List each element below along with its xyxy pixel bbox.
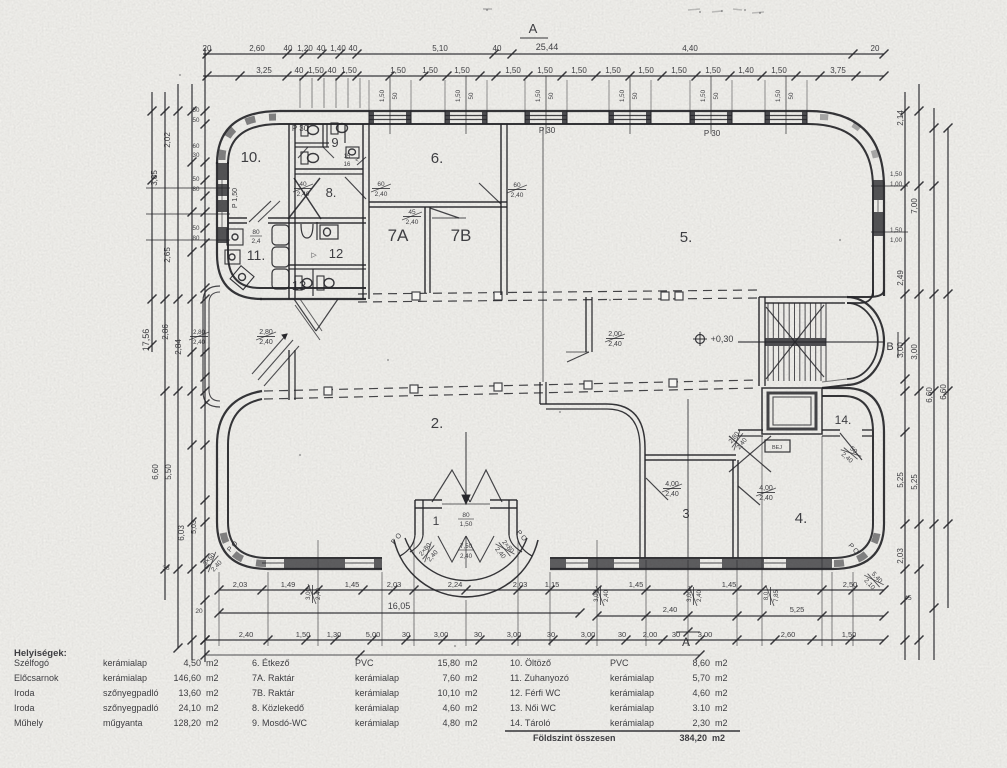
svg-text:3,00: 3,00 <box>896 342 905 358</box>
svg-text:30: 30 <box>402 630 410 639</box>
svg-text:9. Mosdó-WC: 9. Mosdó-WC <box>252 718 308 728</box>
svg-text:P 1,50: P 1,50 <box>232 188 239 208</box>
svg-text:80: 80 <box>193 235 200 242</box>
svg-text:2,50: 2,50 <box>843 580 858 589</box>
svg-text:2,03: 2,03 <box>513 580 528 589</box>
svg-text:3,75: 3,75 <box>830 66 846 75</box>
svg-text:1,20: 1,20 <box>297 44 313 53</box>
svg-text:3,00: 3,00 <box>434 630 449 639</box>
svg-text:7,50: 7,50 <box>460 543 473 550</box>
svg-text:2,80: 2,80 <box>193 330 205 336</box>
svg-text:2,40: 2,40 <box>259 339 273 346</box>
svg-text:m2: m2 <box>715 703 728 713</box>
svg-text:kerámialap: kerámialap <box>103 673 147 683</box>
svg-text:2,40: 2,40 <box>375 191 388 198</box>
svg-text:20: 20 <box>195 608 203 615</box>
svg-text:60: 60 <box>193 143 200 150</box>
svg-text:7,60: 7,60 <box>442 673 460 683</box>
svg-text:2,40: 2,40 <box>297 191 310 198</box>
svg-text:2,40: 2,40 <box>665 491 679 498</box>
svg-text:B: B <box>886 341 893 353</box>
svg-text:Iroda: Iroda <box>14 703 35 713</box>
svg-text:3: 3 <box>682 506 689 521</box>
svg-text:2.: 2. <box>431 415 444 432</box>
svg-text:m2: m2 <box>465 658 478 668</box>
svg-text:50: 50 <box>193 176 200 183</box>
svg-text:40: 40 <box>328 66 337 75</box>
svg-text:Műhely: Műhely <box>14 718 44 728</box>
svg-text:7B. Raktár: 7B. Raktár <box>252 688 295 698</box>
svg-text:8. Közlekedő: 8. Közlekedő <box>252 703 304 713</box>
svg-text:13: 13 <box>292 278 306 293</box>
svg-text:m2: m2 <box>465 673 478 683</box>
svg-text:2,03: 2,03 <box>233 580 248 589</box>
svg-text:2,00: 2,00 <box>608 331 622 338</box>
svg-text:128,20: 128,20 <box>173 718 201 728</box>
svg-text:2,40: 2,40 <box>316 588 322 600</box>
svg-text:7A. Raktár: 7A. Raktár <box>252 673 295 683</box>
svg-text:50: 50 <box>193 117 200 124</box>
svg-text:9: 9 <box>331 135 338 150</box>
svg-text:m2: m2 <box>206 703 219 713</box>
svg-text:5,10: 5,10 <box>432 44 448 53</box>
svg-text:4,60: 4,60 <box>442 703 460 713</box>
svg-text:m2: m2 <box>465 688 478 698</box>
svg-text:5,03: 5,03 <box>191 520 198 534</box>
svg-text:2,86: 2,86 <box>161 324 170 340</box>
svg-text:30: 30 <box>672 630 680 639</box>
svg-text:1,50: 1,50 <box>308 66 324 75</box>
svg-text:A: A <box>529 21 538 36</box>
svg-text:szőnyegpadló: szőnyegpadló <box>103 688 159 698</box>
svg-text:kerámialap: kerámialap <box>610 673 654 683</box>
svg-text:50: 50 <box>468 92 475 99</box>
svg-text:5,70: 5,70 <box>692 673 710 683</box>
svg-text:2,40: 2,40 <box>604 590 610 602</box>
svg-text:3,00: 3,00 <box>910 344 919 360</box>
svg-text:5,00: 5,00 <box>366 630 381 639</box>
svg-text:m2: m2 <box>206 718 219 728</box>
svg-text:1: 1 <box>433 514 440 528</box>
svg-text:<: < <box>355 158 359 164</box>
svg-text:5,25: 5,25 <box>910 474 919 490</box>
svg-text:80: 80 <box>252 229 260 236</box>
svg-text:1,50: 1,50 <box>890 171 903 178</box>
svg-text:5,50: 5,50 <box>164 464 173 480</box>
svg-text:6,03: 6,03 <box>177 525 186 541</box>
svg-text:2,49: 2,49 <box>896 270 905 286</box>
svg-text:2,84: 2,84 <box>174 339 183 355</box>
svg-text:m2: m2 <box>715 688 728 698</box>
svg-text:1,49: 1,49 <box>281 580 296 589</box>
svg-text:20: 20 <box>203 44 212 53</box>
svg-text:7,85: 7,85 <box>774 590 780 602</box>
svg-text:PVC: PVC <box>610 658 629 668</box>
svg-text:1,50: 1,50 <box>296 630 311 639</box>
svg-text:1,45: 1,45 <box>629 580 644 589</box>
svg-text:Iroda: Iroda <box>14 688 35 698</box>
svg-text:1,50: 1,50 <box>460 521 473 528</box>
svg-text:1,50: 1,50 <box>700 89 707 102</box>
svg-text:1,40: 1,40 <box>330 44 346 53</box>
svg-text:kerámialap: kerámialap <box>610 688 654 698</box>
svg-text:1,50: 1,50 <box>671 66 687 75</box>
svg-text:16: 16 <box>344 162 351 168</box>
svg-text:8,0: 8,0 <box>764 591 770 600</box>
svg-text:7A: 7A <box>388 226 409 245</box>
svg-text:1,50: 1,50 <box>454 66 470 75</box>
svg-text:25,44: 25,44 <box>536 42 559 52</box>
svg-text:1,45: 1,45 <box>722 580 737 589</box>
svg-text:6,60: 6,60 <box>939 384 948 400</box>
svg-text:2,40: 2,40 <box>759 495 773 502</box>
svg-text:40: 40 <box>349 44 358 53</box>
svg-text:3,25: 3,25 <box>256 66 272 75</box>
svg-text:4,50: 4,50 <box>183 658 201 668</box>
svg-text:12: 12 <box>329 246 343 261</box>
svg-text:2,30: 2,30 <box>692 718 710 728</box>
svg-text:P 30: P 30 <box>704 129 721 138</box>
svg-text:m2: m2 <box>712 733 725 743</box>
svg-text:50: 50 <box>713 92 720 99</box>
svg-text:1,50: 1,50 <box>890 227 903 234</box>
svg-text:1,50: 1,50 <box>619 89 626 102</box>
svg-text:10.: 10. <box>241 149 262 166</box>
svg-text:1,50: 1,50 <box>605 66 621 75</box>
svg-text:1,50: 1,50 <box>842 630 857 639</box>
svg-text:3,00: 3,00 <box>698 630 713 639</box>
svg-text:2,02: 2,02 <box>163 132 172 148</box>
svg-text:40: 40 <box>317 44 326 53</box>
svg-text:6. Étkező: 6. Étkező <box>252 658 290 668</box>
svg-text:80: 80 <box>462 512 470 519</box>
svg-text:3.10: 3.10 <box>692 703 710 713</box>
svg-text:1,00: 1,00 <box>890 181 903 188</box>
svg-text:30: 30 <box>193 152 200 159</box>
svg-text:3,85: 3,85 <box>150 170 159 186</box>
svg-text:2,00: 2,00 <box>643 630 658 639</box>
svg-text:▷: ▷ <box>311 252 317 259</box>
svg-text:m2: m2 <box>715 658 728 668</box>
svg-text:2,4: 2,4 <box>251 238 260 245</box>
svg-text:kerámialap: kerámialap <box>355 688 399 698</box>
svg-text:m2: m2 <box>206 673 219 683</box>
svg-text:3,00: 3,00 <box>687 590 693 602</box>
svg-text:1,50: 1,50 <box>705 66 721 75</box>
svg-text:3,00: 3,00 <box>594 590 600 602</box>
svg-text:4,00: 4,00 <box>665 481 679 488</box>
svg-text:40: 40 <box>493 44 502 53</box>
svg-text:30: 30 <box>547 630 555 639</box>
svg-text:A: A <box>682 635 690 649</box>
svg-text:m2: m2 <box>206 658 219 668</box>
svg-text:2,60: 2,60 <box>249 44 265 53</box>
svg-text:BEJ: BEJ <box>772 445 782 451</box>
svg-text:2,14: 2,14 <box>896 110 905 126</box>
svg-text:2,80: 2,80 <box>259 329 273 336</box>
svg-text:5,25: 5,25 <box>896 472 905 488</box>
svg-text:3,00: 3,00 <box>507 630 522 639</box>
svg-text:műgyanta: műgyanta <box>103 718 143 728</box>
svg-text:12. Férfi WC: 12. Férfi WC <box>510 688 561 698</box>
svg-text:2,40: 2,40 <box>193 340 205 346</box>
svg-text:15,80: 15,80 <box>437 658 460 668</box>
svg-text:14. Tároló: 14. Tároló <box>510 718 550 728</box>
svg-text:50: 50 <box>548 92 555 99</box>
svg-text:1,50: 1,50 <box>390 66 406 75</box>
svg-text:1,50: 1,50 <box>771 66 787 75</box>
svg-text:PVC: PVC <box>355 658 374 668</box>
svg-text:1,50: 1,50 <box>455 89 462 102</box>
svg-text:szőnyegpadló: szőnyegpadló <box>103 703 159 713</box>
svg-text:50: 50 <box>788 92 795 99</box>
svg-text:5,25: 5,25 <box>790 605 805 614</box>
svg-text:146,60: 146,60 <box>173 673 201 683</box>
svg-text:2,24: 2,24 <box>448 580 463 589</box>
svg-text:+0,30: +0,30 <box>711 334 734 344</box>
svg-text:7,00: 7,00 <box>910 198 919 214</box>
svg-text:30: 30 <box>618 630 626 639</box>
svg-text:2,40: 2,40 <box>663 605 678 614</box>
svg-text:38: 38 <box>162 565 170 572</box>
svg-text:24,10: 24,10 <box>178 703 201 713</box>
svg-text:m2: m2 <box>206 688 219 698</box>
svg-text:3,00: 3,00 <box>581 630 596 639</box>
svg-text:10,10: 10,10 <box>437 688 460 698</box>
svg-text:13,60: 13,60 <box>178 688 201 698</box>
svg-text:15: 15 <box>344 154 351 160</box>
svg-text:14.: 14. <box>835 413 852 427</box>
svg-text:20: 20 <box>871 44 880 53</box>
svg-text:m2: m2 <box>465 703 478 713</box>
svg-text:6.: 6. <box>431 150 444 167</box>
svg-text:Előcsarnok: Előcsarnok <box>14 673 59 683</box>
svg-text:50: 50 <box>392 92 399 99</box>
svg-text:4,40: 4,40 <box>682 44 698 53</box>
svg-text:384,20: 384,20 <box>679 733 707 743</box>
svg-text:4,00: 4,00 <box>759 485 773 492</box>
svg-text:1,50: 1,50 <box>341 66 357 75</box>
svg-text:1,30: 1,30 <box>327 630 342 639</box>
svg-text:8,60: 8,60 <box>692 658 710 668</box>
svg-text:4,80: 4,80 <box>442 718 460 728</box>
svg-text:m2: m2 <box>715 718 728 728</box>
svg-text:40: 40 <box>295 66 304 75</box>
svg-text:1,50: 1,50 <box>571 66 587 75</box>
svg-text:2,40: 2,40 <box>511 192 524 199</box>
svg-text:17,56: 17,56 <box>141 329 151 352</box>
svg-text:2,40: 2,40 <box>697 590 703 602</box>
svg-text:m2: m2 <box>465 718 478 728</box>
svg-text:16,05: 16,05 <box>388 601 411 611</box>
svg-text:1,50: 1,50 <box>537 66 553 75</box>
svg-text:80: 80 <box>193 186 200 193</box>
svg-text:m2: m2 <box>715 673 728 683</box>
svg-text:50: 50 <box>632 92 639 99</box>
svg-text:50: 50 <box>193 225 200 232</box>
svg-text:10. Öltöző: 10. Öltöző <box>510 658 551 668</box>
svg-text:2,40: 2,40 <box>608 341 622 348</box>
svg-text:2,40: 2,40 <box>239 630 254 639</box>
svg-text:2,03: 2,03 <box>387 580 402 589</box>
svg-text:kerámialap: kerámialap <box>355 718 399 728</box>
svg-text:50: 50 <box>193 107 200 114</box>
svg-text:2,40: 2,40 <box>460 553 473 560</box>
svg-text:11.: 11. <box>247 247 265 263</box>
svg-text:13. Női WC: 13. Női WC <box>510 703 557 713</box>
svg-text:kerámialap: kerámialap <box>355 673 399 683</box>
svg-text:1,50: 1,50 <box>638 66 654 75</box>
svg-text:1,00: 1,00 <box>890 237 903 244</box>
svg-text:kerámialap: kerámialap <box>103 658 147 668</box>
svg-text:4,60: 4,60 <box>692 688 710 698</box>
svg-text:1,40: 1,40 <box>738 66 754 75</box>
svg-text:6,60: 6,60 <box>151 464 160 480</box>
svg-text:P 30: P 30 <box>292 124 309 133</box>
svg-text:8.: 8. <box>326 185 337 200</box>
svg-text:3,00: 3,00 <box>306 588 312 600</box>
svg-text:kerámialap: kerámialap <box>610 703 654 713</box>
svg-text:30: 30 <box>474 630 482 639</box>
svg-text:kerámialap: kerámialap <box>355 703 399 713</box>
svg-text:Szélfogó: Szélfogó <box>14 658 49 668</box>
svg-text:2,65: 2,65 <box>163 247 172 263</box>
svg-text:5.: 5. <box>680 229 693 246</box>
svg-text:1,15: 1,15 <box>545 580 560 589</box>
svg-text:7B: 7B <box>451 226 472 245</box>
svg-text:2,03: 2,03 <box>896 548 905 564</box>
svg-text:2,60: 2,60 <box>781 630 796 639</box>
svg-text:40: 40 <box>284 44 293 53</box>
svg-text:1,50: 1,50 <box>535 89 542 102</box>
svg-text:P 30: P 30 <box>539 126 556 135</box>
svg-text:1,50: 1,50 <box>775 89 782 102</box>
svg-text:Földszint összesen: Földszint összesen <box>533 733 616 743</box>
svg-text:4.: 4. <box>795 510 808 527</box>
svg-text:2,40: 2,40 <box>406 219 419 226</box>
svg-text:45: 45 <box>904 595 912 602</box>
svg-text:1,50: 1,50 <box>422 66 438 75</box>
svg-text:11. Zuhanyozó: 11. Zuhanyozó <box>510 673 569 683</box>
svg-text:6,60: 6,60 <box>925 387 934 403</box>
svg-text:kerámialap: kerámialap <box>610 718 654 728</box>
svg-text:1,45: 1,45 <box>345 580 360 589</box>
svg-text:1,50: 1,50 <box>505 66 521 75</box>
svg-text:1,50: 1,50 <box>379 89 386 102</box>
